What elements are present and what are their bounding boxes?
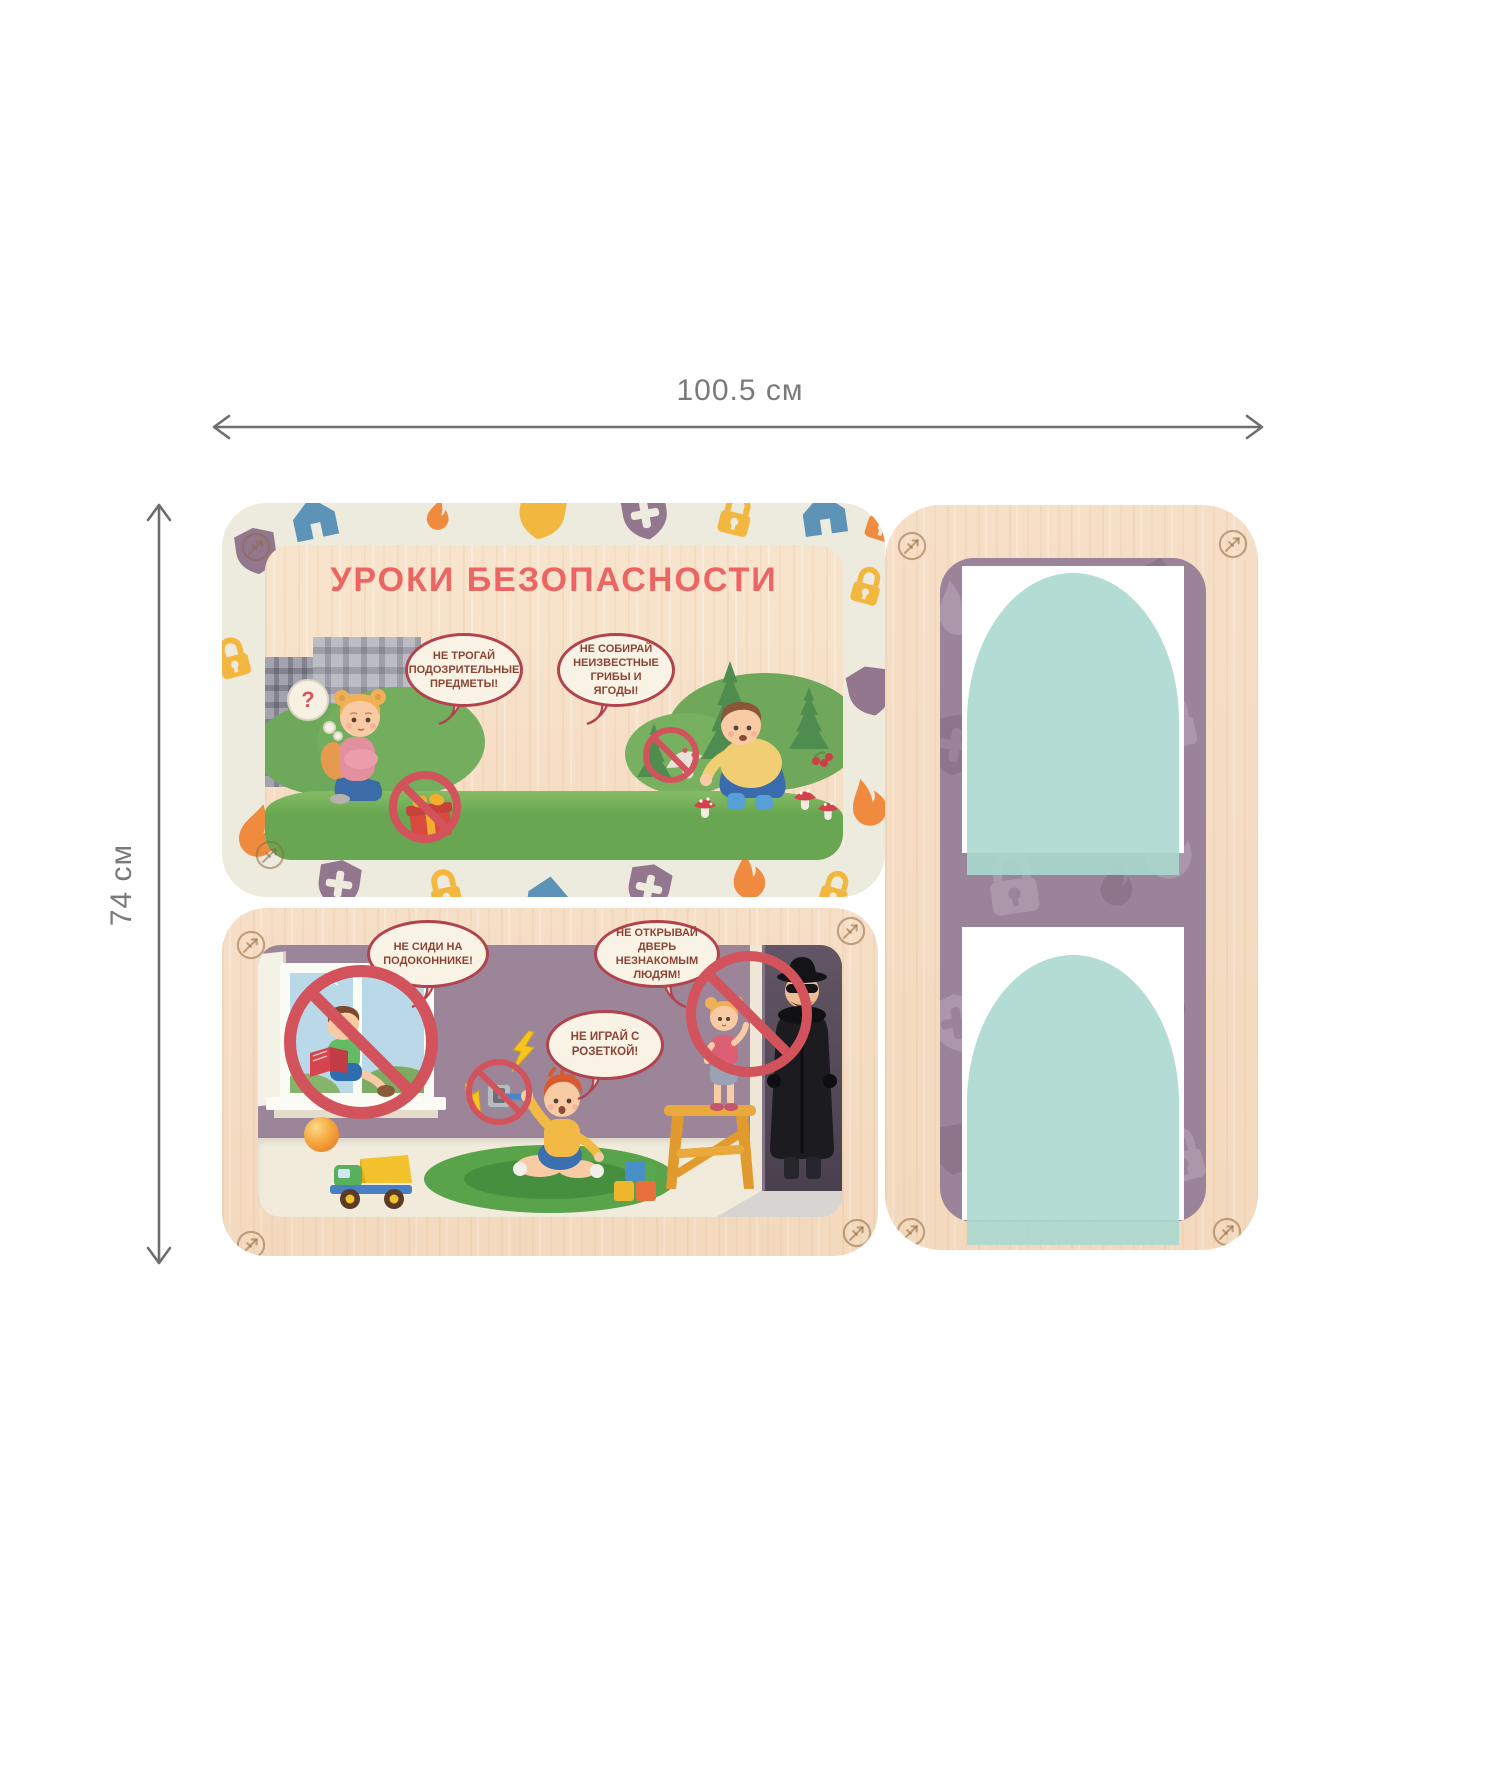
bottom-safety-board: НЕ СИДИ НА ПОДОКОННИКЕ! НЕ ОТКРЫВАЙ ДВЕР…	[222, 908, 878, 1256]
board-title: УРОКИ БЕЗОПАСНОСТИ	[265, 561, 843, 600]
shield-icon	[505, 503, 579, 550]
lock-icon	[836, 555, 885, 616]
top-safety-board: УРОКИ БЕЗОПАСНОСТИ ?	[222, 503, 885, 897]
screw-icon	[1218, 529, 1248, 559]
screw-icon	[842, 1218, 872, 1248]
toy-truck	[328, 1151, 416, 1211]
lock-icon	[804, 859, 866, 897]
door-prohibition-sign	[686, 951, 812, 1077]
speech-bubble: НЕ ИГРАЙ С РОЗЕТКОЙ!	[546, 1010, 664, 1080]
house-icon	[790, 503, 858, 547]
height-dimension-arrow	[144, 496, 174, 1272]
fly-agaric-mushroom	[817, 797, 839, 822]
gift-prohibition-sign	[389, 771, 461, 843]
speech-bubble: НЕ ТРОГАЙ ПОДОЗРИТЕЛЬНЫЕ ПРЕДМЕТЫ!	[405, 633, 523, 707]
screw-icon	[255, 840, 285, 870]
width-dimension-label: 100.5 см	[560, 374, 920, 408]
house-icon	[516, 863, 579, 897]
lock-icon	[413, 858, 477, 897]
screw-icon	[897, 531, 927, 561]
flame-icon	[415, 503, 460, 540]
screw-icon	[241, 532, 271, 562]
width-dimension-arrow	[205, 412, 1271, 442]
screw-icon	[836, 916, 866, 946]
lock-icon	[702, 503, 770, 549]
screw-icon	[236, 930, 266, 960]
lock-icon	[849, 503, 885, 556]
fly-agaric-mushroom	[793, 785, 817, 812]
mushroom-prohibition-sign	[643, 727, 699, 783]
height-dimension-label: 74 см	[105, 815, 139, 955]
purple-inner-panel	[940, 558, 1206, 1222]
windowsill-prohibition-sign	[284, 965, 438, 1119]
right-photo-board	[885, 505, 1258, 1250]
flip-door-arch	[967, 955, 1179, 1245]
girl-with-backpack	[315, 685, 400, 810]
screw-icon	[1212, 1217, 1242, 1247]
flip-door-arch	[967, 573, 1179, 875]
shieldx-icon	[615, 854, 684, 897]
speech-bubble: НЕ СОБИРАЙ НЕИЗВЕСТНЫЕ ГРИБЫ И ЯГОДЫ!	[557, 633, 675, 707]
toy-ball	[304, 1117, 339, 1152]
outdoor-scene: УРОКИ БЕЗОПАСНОСТИ ?	[265, 545, 843, 860]
indoor-scene	[258, 945, 842, 1217]
socket-prohibition-sign	[466, 1059, 532, 1125]
product-mockup-page: 100.5 см 74 см УРОКИ БЕЗОПАСНОСТИ ?	[0, 0, 1500, 1782]
lock-icon	[222, 625, 266, 691]
shieldx-icon	[609, 503, 681, 550]
berries	[809, 749, 835, 769]
screw-icon	[896, 1217, 926, 1247]
screw-icon	[236, 1230, 266, 1256]
fly-agaric-mushroom	[693, 793, 717, 820]
